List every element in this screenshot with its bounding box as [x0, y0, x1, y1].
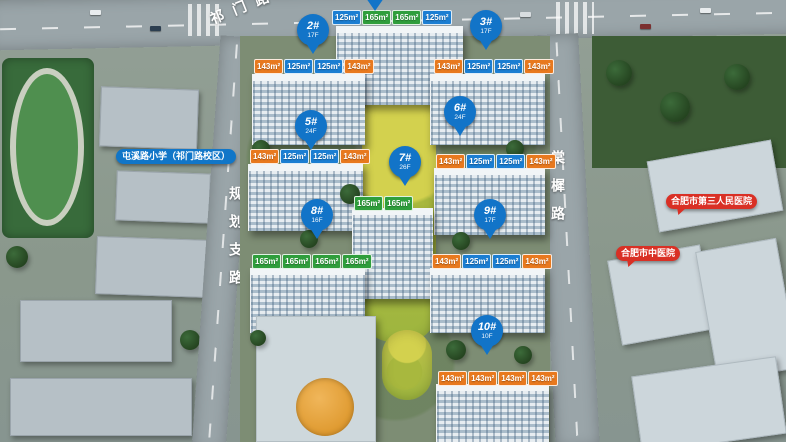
- car: [520, 12, 531, 17]
- tree-clump: [6, 246, 28, 268]
- school-label: 屯溪路小学（祁门路校区）: [116, 149, 236, 164]
- running-track: [10, 68, 84, 226]
- building-6-lower: [434, 168, 545, 235]
- neighboring-building: [20, 300, 172, 362]
- hospital-2-label: 合肥市中医院: [616, 246, 680, 261]
- tree-clump: [506, 140, 524, 158]
- tree-clump: [446, 340, 466, 360]
- car: [640, 24, 651, 29]
- tree-clump: [724, 64, 750, 90]
- tree-clump: [250, 330, 266, 346]
- pin-offscreen-tail: [366, 0, 384, 20]
- neighboring-building: [10, 378, 192, 436]
- school-building: [99, 86, 199, 149]
- tree-clump: [180, 330, 200, 350]
- tree-clump: [340, 184, 360, 204]
- tree-clump: [660, 92, 690, 122]
- hospital-1-label: 合肥市第三人民医院: [666, 194, 757, 209]
- car: [700, 8, 711, 13]
- tree-clump: [606, 60, 632, 86]
- tree-clump: [514, 346, 532, 364]
- kindergarten-playground: [296, 378, 354, 436]
- landscape-strip-south: [382, 330, 432, 400]
- tree-clump: [300, 230, 318, 248]
- road-right-label: 棠樨路: [548, 150, 568, 234]
- tree-clump: [452, 232, 470, 250]
- tree-clump: [252, 140, 270, 158]
- car: [150, 26, 161, 31]
- building-6-upper: [430, 74, 545, 145]
- building-9-east: [430, 268, 545, 333]
- site-plan-rendering: 祁门路 规划支路 棠樨路 125m: [0, 0, 786, 442]
- school-building: [115, 170, 211, 223]
- hospital-building: [631, 356, 786, 442]
- school-building: [95, 236, 209, 298]
- building-5-upper: [252, 74, 365, 145]
- crosswalk-right: [556, 2, 594, 34]
- building-10: [436, 384, 549, 442]
- sports-field: [2, 58, 94, 238]
- car: [90, 10, 101, 15]
